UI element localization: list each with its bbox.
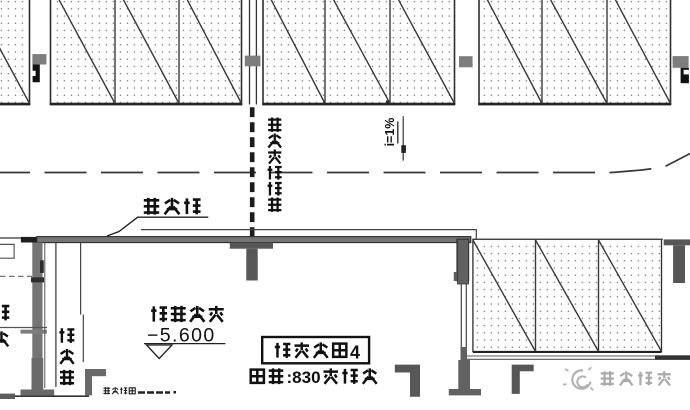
svg-text:4: 4 — [350, 343, 360, 363]
svg-text:i=1%: i=1% — [383, 118, 397, 147]
svg-text::830: :830 — [287, 368, 321, 387]
